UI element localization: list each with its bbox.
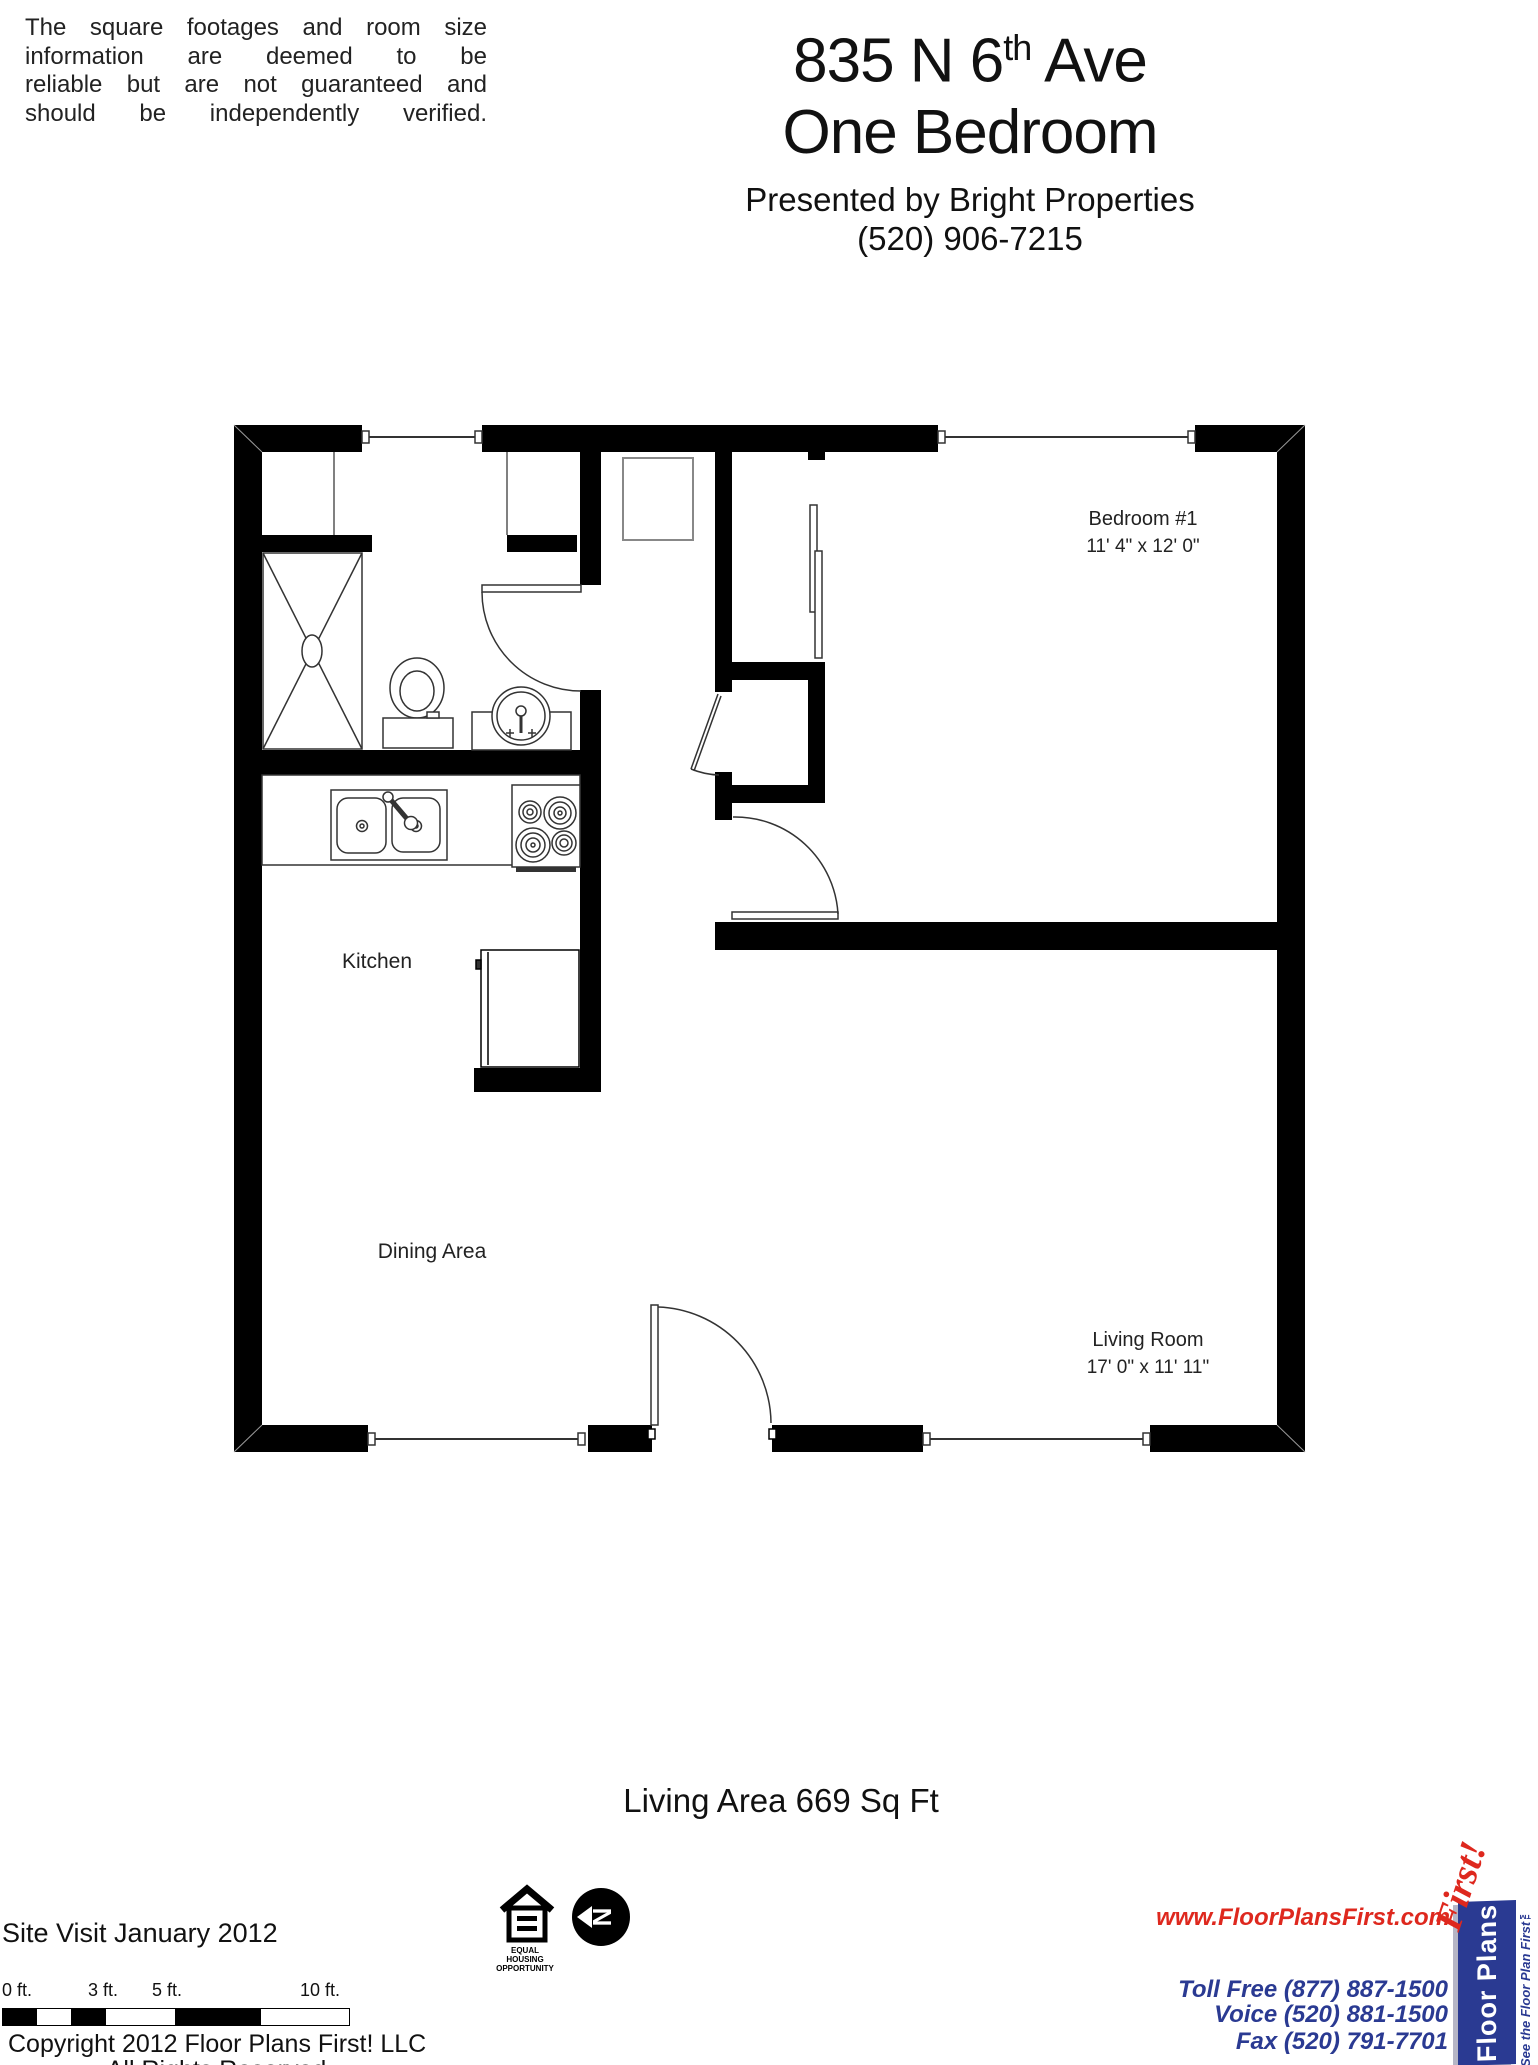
bedroom-door	[732, 817, 838, 919]
scale-bar	[2, 2008, 350, 2026]
equal-housing-caption: EQUAL HOUSING OPPORTUNITY	[484, 1946, 566, 1973]
address-number: 835 N 6	[793, 27, 1003, 96]
website-link: www.FloorPlansFirst.com	[1156, 1904, 1450, 1932]
disclaimer-line: information are deemed to be	[25, 43, 487, 72]
scale-label-3: 3 ft.	[88, 1980, 118, 2001]
thin-partitions	[334, 452, 507, 535]
stove	[512, 785, 580, 872]
closet-sliding-doors	[810, 505, 822, 658]
title-block: 835 N 6th Ave One Bedroom Presented by B…	[580, 12, 1360, 258]
equal-housing-icon	[502, 1889, 552, 1940]
site-visit-date: Site Visit January 2012	[2, 1918, 278, 1949]
bathroom-door	[482, 585, 581, 691]
fax-number: Fax (520) 791-7701	[1236, 2028, 1448, 2056]
logo-tagline: See the Floor Plan First™	[1518, 1903, 1533, 2065]
floor-plan	[0, 0, 1538, 2065]
flyer-page: The square footages and room size inform…	[0, 0, 1538, 2065]
north-letter: N	[587, 1900, 617, 1934]
scale-label-5: 5 ft.	[152, 1980, 182, 2001]
eho-caption-line: HOUSING	[484, 1955, 566, 1964]
toll-free-number: Toll Free (877) 887-1500	[1178, 1976, 1448, 2004]
room-name: Living Room	[1028, 1327, 1268, 1354]
bathroom-sink	[472, 687, 571, 750]
utility-closet-door	[691, 694, 721, 775]
room-name: Bedroom #1	[1023, 506, 1263, 533]
page-title-address: 835 N 6th Ave	[580, 12, 1360, 98]
copyright-line2: All Rights Reserved.	[8, 2056, 432, 2065]
disclaimer: The square footages and room size inform…	[25, 14, 487, 128]
disclaimer-line: should be independently verified.	[25, 100, 487, 129]
hall-utility-unit	[623, 458, 693, 540]
shower	[263, 553, 362, 749]
toilet	[383, 658, 453, 748]
scale-label-10: 10 ft.	[300, 1980, 340, 2001]
bedroom-label: Bedroom #1 11' 4" x 12' 0"	[1023, 506, 1263, 560]
living-area-total: Living Area 669 Sq Ft	[481, 1782, 1081, 1820]
eho-caption-line: OPPORTUNITY	[484, 1964, 566, 1973]
dining-area-label: Dining Area	[332, 1240, 532, 1264]
kitchen-label: Kitchen	[277, 950, 477, 974]
room-dims: 11' 4" x 12' 0"	[1023, 533, 1263, 560]
unit-type-title: One Bedroom	[580, 98, 1360, 168]
room-dims: 17' 0" x 11' 11"	[1028, 1354, 1268, 1381]
eho-caption-line: EQUAL	[484, 1946, 566, 1955]
entry-door	[648, 1305, 776, 1439]
disclaimer-line: reliable but are not guaranteed and	[25, 71, 487, 100]
address-ordinal: th	[1003, 27, 1031, 68]
disclaimer-line: The square footages and room size	[25, 14, 487, 43]
kitchen-sink	[331, 790, 447, 860]
address-street: Ave	[1031, 27, 1147, 96]
copyright-line1: Copyright 2012 Floor Plans First! LLC	[8, 2030, 426, 2059]
voice-number: Voice (520) 881-1500	[1214, 2001, 1448, 2029]
scale-label-0: 0 ft.	[2, 1980, 32, 2001]
living-room-label: Living Room 17' 0" x 11' 11"	[1028, 1327, 1268, 1381]
presented-by: Presented by Bright Properties	[580, 180, 1360, 220]
logo-name-part1: Floor Plans	[1472, 1903, 1503, 2062]
contact-phone: (520) 906-7215	[580, 220, 1360, 258]
refrigerator	[476, 950, 579, 1067]
